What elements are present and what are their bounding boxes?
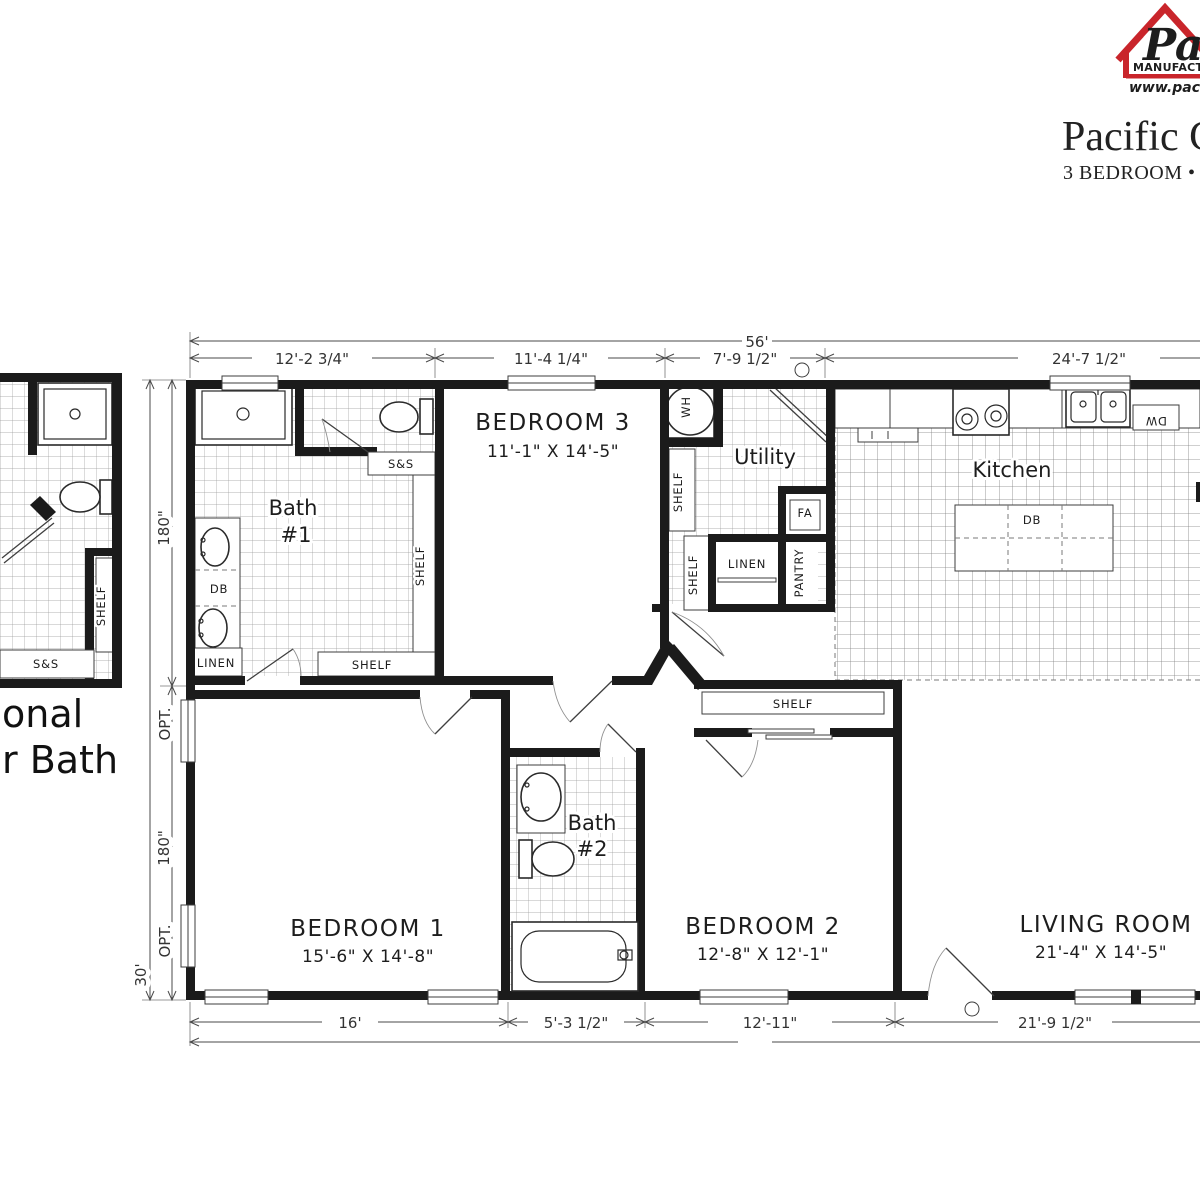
bedroom2-name: BEDROOM 2: [685, 914, 841, 940]
document-page: Pa MANUFACTU www.pacifi Pacific Ch 3 BED…: [0, 0, 1200, 1200]
vanity-db-label: DB: [210, 582, 228, 596]
dishwasher-label: DW: [1145, 414, 1167, 428]
optional-caption-line1: onal: [2, 692, 83, 736]
dimensions-bottom: 16' 5'-3 1/2" 12'-11" 21'-9 1/2": [190, 1002, 1200, 1046]
sink-icon: [199, 609, 227, 647]
porch-light-icon: [795, 363, 809, 377]
bedroom1-name: BEDROOM 1: [290, 916, 446, 942]
dim-bottom-1: 16': [338, 1014, 361, 1032]
kitchen-label: Kitchen: [973, 458, 1052, 482]
plan-title: Pacific Ch: [1062, 114, 1200, 160]
dim-top-2: 11'-4 1/4": [514, 350, 588, 368]
island-db-label: DB: [1023, 513, 1041, 527]
bath1-linen-label: LINEN: [197, 656, 235, 670]
toilet-tank-icon: [100, 480, 112, 514]
bedroom1-size: 15'-6" X 14'-8": [302, 947, 434, 967]
bath1-ss-label: S&S: [388, 457, 414, 471]
dimensions-left: 30' 180" 180" OPT. OPT.: [132, 380, 186, 1000]
dim-left-lower: 180": [155, 830, 173, 866]
bedroom2-closet: SHELF: [702, 692, 884, 714]
bedroom2-size: 12'-8" X 12'-1": [697, 945, 829, 965]
bath2-label-line1: Bath: [568, 811, 617, 835]
bedroom3-name: BEDROOM 3: [475, 410, 631, 436]
logo-line1: MANUFACTU: [1133, 61, 1200, 74]
dimensions-top: 56' 12'-2 3/4" 11'-4 1/4" 7'-9 1/2" 24'-…: [190, 332, 1200, 378]
optional-ss-label: S&S: [33, 657, 59, 671]
utility-shelf1-label: SHELF: [671, 472, 685, 512]
dim-bottom-4: 21'-9 1/2": [1018, 1014, 1092, 1032]
bedroom3-size: 11'-1" X 14'-5": [487, 442, 619, 462]
shower-icon: [195, 385, 292, 445]
optional-caption-line2: r Bath: [2, 738, 118, 782]
dim-top-1: 12'-2 3/4": [275, 350, 349, 368]
dim-overall-height: 30': [132, 963, 150, 986]
opt-window-lower-label: OPT.: [156, 924, 174, 957]
pantry-label: PANTRY: [792, 548, 806, 597]
dim-top-4: 24'-7 1/2": [1052, 350, 1126, 368]
optional-bath-plan: SHELF S&S onal r Bath: [0, 373, 122, 782]
logo-website: www.pacifi: [1129, 80, 1200, 96]
plan-subtitle: 3 BEDROOM • 2 B: [1063, 162, 1200, 184]
logo-house-base-icon: [1126, 74, 1200, 79]
toilet-icon: [532, 842, 574, 876]
dim-left-upper: 180": [155, 510, 173, 546]
sink-icon: [521, 773, 561, 821]
optional-shelf-label: SHELF: [94, 586, 108, 626]
sink-icon: [201, 528, 229, 566]
bath1-label-line1: Bath: [269, 496, 318, 520]
living-room-size: 21'-4" X 14'-5": [1035, 943, 1167, 963]
brand-logo: Pa MANUFACTU www.pacifi: [1118, 8, 1200, 96]
furnace-label: FA: [797, 506, 812, 520]
porch-light-icon: [965, 1002, 979, 1016]
utility-shelf2-label: SHELF: [686, 555, 700, 595]
dim-overall-width: 56': [745, 333, 768, 351]
water-heater-label: WH: [679, 396, 693, 418]
closet-shelf-label: SHELF: [773, 697, 813, 711]
toilet-tank-icon: [519, 840, 532, 878]
dim-top-3: 7'-9 1/2": [713, 350, 777, 368]
bath2-label-line2: #2: [577, 837, 608, 861]
utility-label: Utility: [734, 445, 796, 469]
bath1-shelf-vertical-label: SHELF: [413, 546, 427, 586]
bath1-shelf-bottom-label: SHELF: [352, 658, 392, 672]
opt-window-upper-label: OPT.: [156, 707, 174, 740]
dim-bottom-3: 12'-11": [743, 1014, 798, 1032]
bath1-label-line2: #1: [281, 523, 312, 547]
toilet-icon: [60, 482, 100, 512]
floorplan-drawing: Pa MANUFACTU www.pacifi Pacific Ch 3 BED…: [0, 0, 1200, 1200]
utility-linen-label: LINEN: [728, 557, 766, 571]
toilet-icon: [380, 402, 418, 432]
living-room-name: LIVING ROOM: [1020, 912, 1193, 938]
toilet-tank-icon: [420, 399, 433, 434]
dim-bottom-2: 5'-3 1/2": [544, 1014, 608, 1032]
